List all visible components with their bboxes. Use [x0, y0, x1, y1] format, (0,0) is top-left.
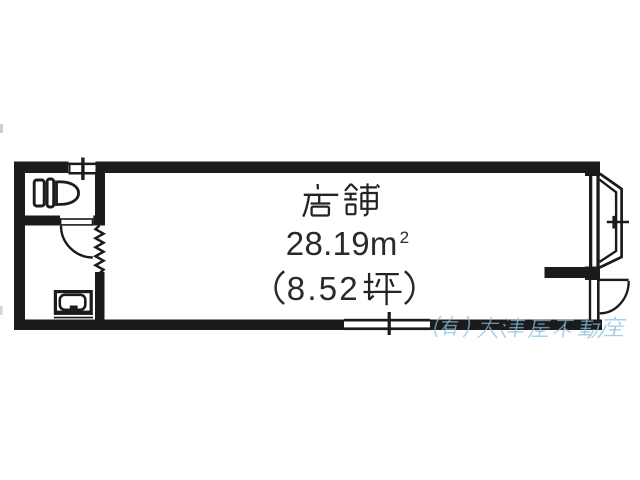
svg-text:8.52: 8.52 — [287, 270, 360, 307]
svg-text:2: 2 — [400, 228, 409, 247]
svg-text:28.19m: 28.19m — [286, 225, 398, 262]
